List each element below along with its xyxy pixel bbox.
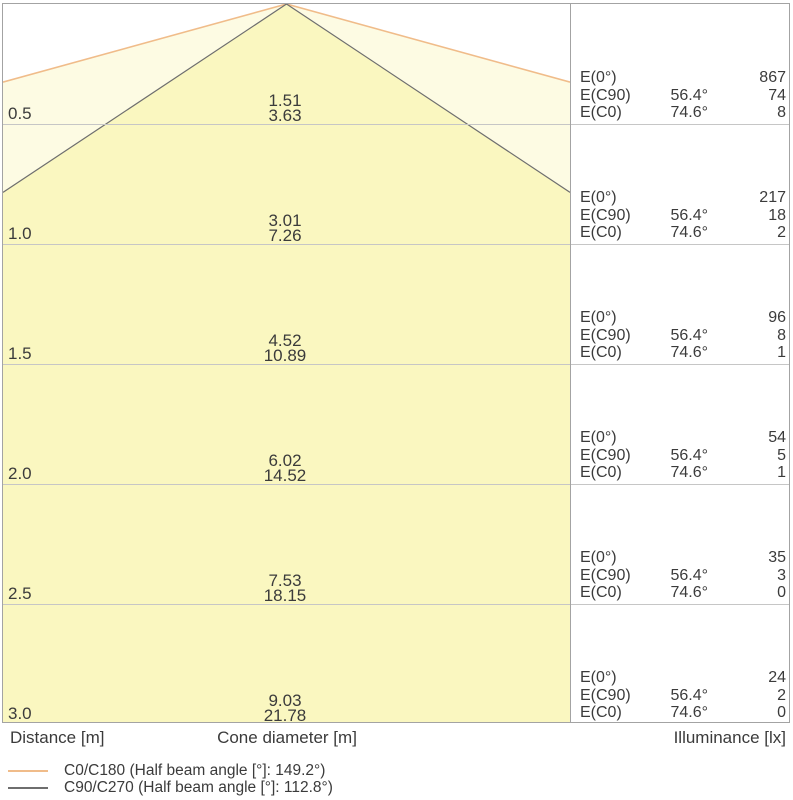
ec0-angle: 74.6° [666,104,708,122]
legend-label-c90-c270: C90/C270 (Half beam angle [°]: 112.8°) [64,779,333,796]
table-divider [570,4,571,722]
ec90-angle: 56.4° [666,87,708,105]
cone-diameter-values: 4.52 10.89 [225,334,345,363]
cone-diagram-panel: 0.5 1.0 1.5 2.0 2.5 3.0 1.51 3.63 3.01 7… [2,3,790,723]
ec0-label: E(C0) [580,344,666,362]
distance-label: 2.5 [8,584,68,604]
ec90-label: E(C90) [580,207,666,225]
ec0-label: E(C0) [580,464,666,482]
ec90-angle: 56.4° [666,327,708,345]
ec90-value: 3 [708,567,786,585]
e0-value: 24 [708,669,786,687]
illuminance-row: E(0°)35 E(C90)56.4°3 E(C0)74.6°0 [580,549,786,602]
ec0-value: 1 [708,464,786,482]
row-separator [3,244,789,245]
ec0-value: 0 [708,704,786,722]
ec90-angle: 56.4° [666,207,708,225]
distance-label: 1.0 [8,224,68,244]
cone-diameter-c0: 7.26 [225,229,345,244]
ec90-value: 2 [708,687,786,705]
cone-diameter-c0: 14.52 [225,469,345,484]
ec0-value: 2 [708,224,786,242]
e0-value: 35 [708,549,786,567]
illuminance-row: E(0°)24 E(C90)56.4°2 E(C0)74.6°0 [580,669,786,722]
cone-diameter-values: 6.02 14.52 [225,454,345,483]
ec0-value: 0 [708,584,786,602]
illuminance-axis-label: Illuminance [lx] [674,728,786,748]
ec0-label: E(C0) [580,224,666,242]
ec0-value: 8 [708,104,786,122]
illuminance-row: E(0°)217 E(C90)56.4°18 E(C0)74.6°2 [580,189,786,242]
e0-label: E(0°) [580,549,666,567]
ec0-label: E(C0) [580,584,666,602]
ec0-label: E(C0) [580,104,666,122]
ec0-angle: 74.6° [666,344,708,362]
cone-diameter-values: 3.01 7.26 [225,214,345,243]
legend: C0/C180 (Half beam angle [°]: 149.2°) C9… [8,762,333,796]
distance-label: 3.0 [8,704,68,724]
ec0-angle: 74.6° [666,584,708,602]
illuminance-row: E(0°)867 E(C90)56.4°74 E(C0)74.6°8 [580,69,786,122]
distance-label: 1.5 [8,344,68,364]
ec0-value: 1 [708,344,786,362]
c90-c270-line-swatch [8,787,48,789]
cone-diameter-values: 9.03 21.78 [225,694,345,723]
cone-diameter-values: 1.51 3.63 [225,94,345,123]
ec90-angle: 56.4° [666,687,708,705]
c0-c180-line-swatch [8,770,48,772]
legend-label-c0-c180: C0/C180 (Half beam angle [°]: 149.2°) [64,762,325,779]
distance-label: 0.5 [8,104,68,124]
row-separator [3,124,789,125]
ec90-angle: 56.4° [666,447,708,465]
ec90-label: E(C90) [580,687,666,705]
cone-diameter-axis-label: Cone diameter [m] [152,728,422,748]
ec90-value: 74 [708,87,786,105]
ec0-angle: 74.6° [666,224,708,242]
legend-item-c0-c180: C0/C180 (Half beam angle [°]: 149.2°) [8,762,333,779]
e0-value: 96 [708,309,786,327]
row-separator [3,364,789,365]
cone-diameter-c0: 3.63 [225,109,345,124]
ec0-angle: 74.6° [666,464,708,482]
illuminance-row: E(0°)54 E(C90)56.4°5 E(C0)74.6°1 [580,429,786,482]
illuminance-row: E(0°)96 E(C90)56.4°8 E(C0)74.6°1 [580,309,786,362]
ec90-label: E(C90) [580,567,666,585]
e0-label: E(0°) [580,429,666,447]
ec90-label: E(C90) [580,327,666,345]
e0-value: 54 [708,429,786,447]
e0-label: E(0°) [580,309,666,327]
cone-diameter-c0: 18.15 [225,589,345,604]
ec0-label: E(C0) [580,704,666,722]
ec90-value: 5 [708,447,786,465]
e0-label: E(0°) [580,69,666,87]
e0-value: 217 [708,189,786,207]
row-separator [3,484,789,485]
distance-axis-label: Distance [m] [10,728,104,748]
cone-diameter-values: 7.53 18.15 [225,574,345,603]
distance-label: 2.0 [8,464,68,484]
ec90-angle: 56.4° [666,567,708,585]
cone-diameter-c0: 10.89 [225,349,345,364]
legend-item-c90-c270: C90/C270 (Half beam angle [°]: 112.8°) [8,779,333,796]
row-separator [3,604,789,605]
e0-label: E(0°) [580,669,666,687]
cone-diameter-c0: 21.78 [225,709,345,724]
ec90-value: 8 [708,327,786,345]
ec90-value: 18 [708,207,786,225]
ec90-label: E(C90) [580,87,666,105]
e0-label: E(0°) [580,189,666,207]
e0-value: 867 [708,69,786,87]
ec90-label: E(C90) [580,447,666,465]
ec0-angle: 74.6° [666,704,708,722]
